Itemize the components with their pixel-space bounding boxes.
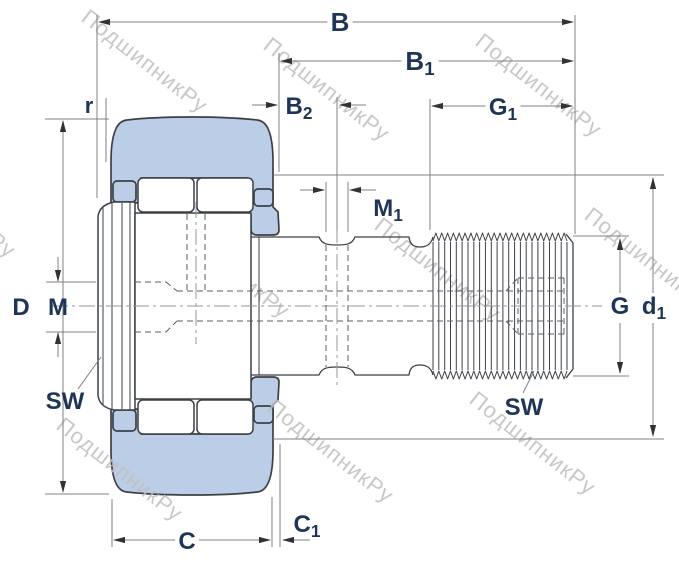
label-r: r <box>85 93 94 118</box>
needle-roller <box>197 400 253 434</box>
label-B2: B2 <box>286 93 313 123</box>
watermark-text: ПодшипникРу <box>471 28 607 142</box>
seal-top-right <box>254 189 273 206</box>
watermark-text: ПодшипникРу <box>0 149 21 263</box>
label-D: D <box>12 294 29 321</box>
thread-crest-top <box>433 233 567 241</box>
bearing-drawing-page: ПодшипникРуПодшипникРуПодшипникРуПодшипн… <box>0 0 679 563</box>
label-SW-left: SW <box>46 388 85 415</box>
label-C1: C1 <box>294 511 321 541</box>
label-SW-right: SW <box>505 394 544 421</box>
label-G: G <box>611 293 630 320</box>
needle-roller <box>138 178 194 212</box>
cam-follower-cross-section: ПодшипникРуПодшипникРуПодшипникРуПодшипн… <box>0 0 679 563</box>
watermark-text: ПодшипникРу <box>263 394 399 508</box>
thread-crest-bottom <box>433 371 567 379</box>
label-C: C <box>178 528 195 555</box>
label-B: B <box>331 7 350 37</box>
needle-roller <box>138 400 194 434</box>
label-M: M <box>48 294 68 321</box>
seal-top-left <box>113 181 136 202</box>
needle-roller <box>197 178 253 212</box>
seal-bottom-left <box>113 410 136 431</box>
label-M1: M1 <box>373 195 403 225</box>
